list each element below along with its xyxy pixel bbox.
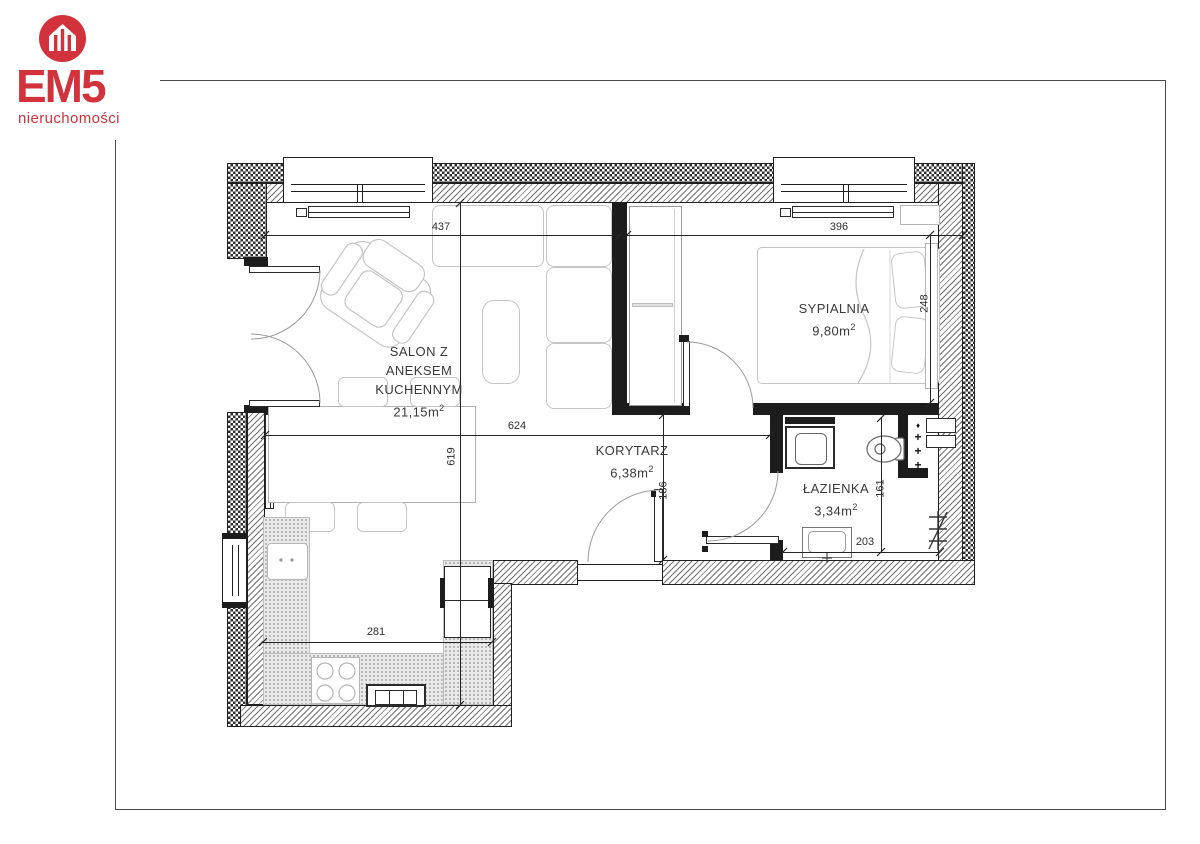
logo: EM5 nieruchomości — [0, 0, 160, 140]
balcony-door-jamb-top — [244, 257, 268, 266]
sypialnia-area: 9,80m2 — [774, 318, 894, 340]
entry-door-hinge — [651, 491, 656, 497]
dim-label-left-depth: 619 — [446, 436, 459, 478]
wall-bottom-corridor-right — [662, 560, 975, 585]
shaft-plus-1: + — [910, 430, 926, 444]
house-icon — [39, 15, 86, 62]
window-left — [222, 538, 247, 603]
wall-right-outer — [962, 163, 975, 585]
shaft-box-2 — [926, 435, 956, 448]
kitchen-sink — [267, 543, 308, 580]
wall-top-inner-left — [265, 183, 285, 203]
shaft-box-1 — [926, 418, 956, 433]
lazienka-name: ŁAZIENKA — [776, 479, 896, 498]
sofa-back — [432, 205, 544, 267]
dim-line-437 — [265, 235, 620, 236]
korytarz-name: KORYTARZ — [572, 441, 692, 460]
dining-chair-4 — [357, 502, 407, 532]
window-bedroom — [773, 157, 915, 203]
dim-label-salon-width: 437 — [420, 221, 462, 234]
salon-name-line1: SALON Z — [334, 342, 504, 361]
window-left-jamb-bottom — [222, 603, 247, 608]
stove — [311, 657, 360, 704]
room-label-salon: SALON Z ANEKSEM KUCHENNYM 21,15m2 — [334, 342, 504, 421]
wardrobe — [629, 206, 682, 406]
radiator-bedroom — [792, 206, 894, 218]
bedroom-door-leaf — [683, 341, 690, 407]
wall-left-upper — [227, 412, 247, 538]
wall-bedroom-bottom-right — [753, 403, 938, 415]
fridge — [444, 566, 491, 638]
washing-machine — [785, 426, 835, 469]
shaft-plus-3: + — [910, 458, 926, 472]
kitchen-post-left — [440, 578, 445, 608]
dim-label-kitchen-width: 281 — [355, 626, 397, 639]
brand-name: EM5 — [16, 63, 105, 109]
dim-line-624 — [265, 435, 770, 436]
window-left-jamb-top — [222, 533, 247, 538]
radiator-salon — [308, 206, 410, 218]
floor-plan-page: EM5 nieruchomości — [0, 0, 1200, 844]
shaft-diamond: ♦ — [910, 421, 926, 430]
sofa-seat-1 — [546, 267, 612, 343]
wall-top-outer-left — [227, 163, 285, 183]
korytarz-area: 6,38m2 — [572, 460, 692, 482]
room-label-lazienka: ŁAZIENKA 3,34m2 — [776, 479, 896, 520]
washer-counter-edge — [785, 417, 835, 424]
wall-kitchen-bottom — [240, 705, 512, 727]
sofa-seat-2 — [546, 343, 612, 409]
radiator-bedroom-valve — [780, 208, 791, 217]
dim-line-203 — [783, 552, 940, 553]
dim-line-396 — [627, 235, 963, 236]
radiator-salon-valve — [296, 208, 307, 217]
window-salon — [283, 157, 433, 203]
sofa-corner — [546, 205, 612, 267]
wall-bathroom-left — [770, 415, 783, 473]
wall-bottom-corridor-left — [493, 560, 578, 585]
lazienka-area: 3,34m2 — [776, 498, 896, 520]
bathroom-door-handle — [702, 531, 708, 537]
wall-top-outer-mid — [431, 163, 775, 183]
bathroom-door-handle-2 — [702, 546, 708, 552]
dim-line-281 — [263, 642, 492, 643]
brand-subtitle: nieruchomości — [18, 110, 120, 127]
kitchen-post-right — [488, 578, 493, 608]
room-label-sypialnia: SYPIALNIA 9,80m2 — [774, 299, 894, 340]
wall-top-inner-right — [913, 183, 939, 203]
room-label-korytarz: KORYTARZ 6,38m2 — [572, 441, 692, 482]
oven — [366, 684, 426, 707]
salon-name-line2: ANEKSEM — [334, 361, 504, 380]
wall-top-inner-mid — [431, 183, 775, 203]
dim-label-bathroom-width: 203 — [844, 536, 886, 549]
nightstand — [900, 205, 940, 225]
wall-corner-tl — [227, 183, 267, 259]
dim-label-bedroom-width: 396 — [818, 221, 860, 234]
bathroom-door-leaf — [706, 536, 779, 544]
balcony-door-leaf-bottom — [249, 400, 320, 407]
entry-threshold — [578, 561, 662, 584]
shaft-marks: ♦ + + + — [910, 421, 926, 472]
sypialnia-name: SYPIALNIA — [774, 299, 894, 318]
dim-label-open-width: 624 — [496, 420, 538, 433]
shaft-plus-2: + — [910, 444, 926, 458]
wall-right-inner — [938, 183, 963, 585]
balcony-door-leaf-top — [249, 266, 320, 273]
dim-label-bedroom-depth: 248 — [919, 283, 932, 325]
dim-line-619 — [460, 203, 461, 705]
bedroom-door-hinge — [679, 335, 689, 342]
salon-area: 21,15m2 — [334, 399, 504, 421]
salon-name-line3: KUCHENNYM — [334, 380, 504, 399]
